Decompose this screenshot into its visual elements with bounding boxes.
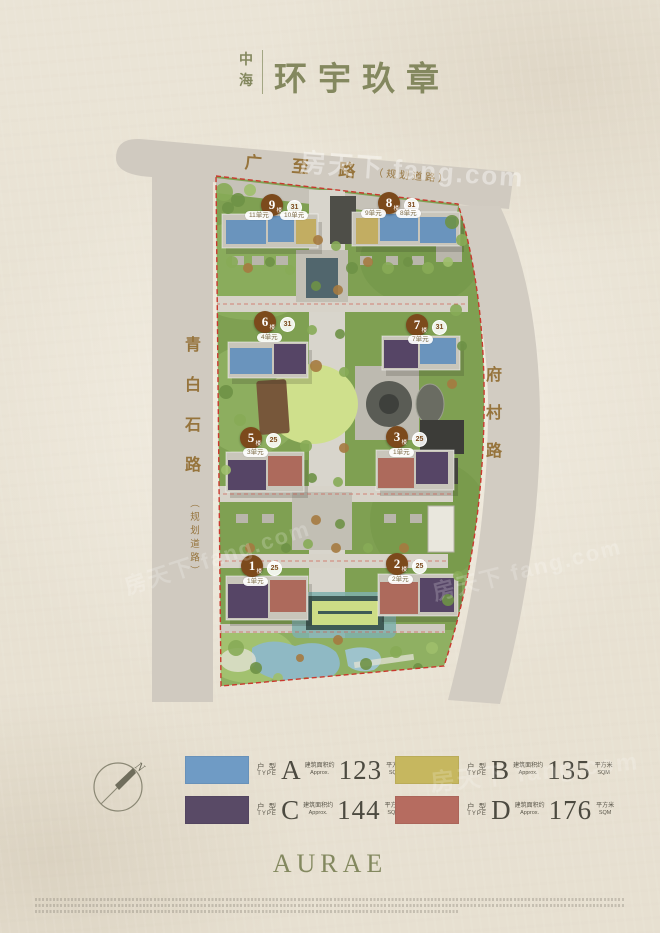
type-en: TYPE [257, 771, 277, 779]
legend-type-letter: D [491, 796, 511, 824]
legend-item-a: 户 型TYPEA建筑面积约Approx.123平方米SQM [185, 755, 404, 785]
approx-en: Approx. [513, 770, 543, 777]
building-number: 7 [414, 317, 421, 332]
legend-area-value: 176 [549, 796, 593, 824]
floor-count-badge: 25 [266, 433, 281, 448]
legend-unit-label: 平方米SQM [596, 803, 614, 817]
legend-area-value: 144 [337, 796, 381, 824]
type-en: TYPE [467, 811, 487, 819]
sqm-en: SQM [596, 810, 614, 817]
building-marker: 2楼 [386, 553, 408, 575]
road-note-left: （规划道路） [186, 498, 200, 579]
approx-cn: 建筑面积约 [305, 763, 335, 771]
legend-item-b: 户 型TYPEB建筑面积约Approx.135平方米SQM [395, 755, 613, 785]
building-number: 3 [394, 429, 401, 444]
unit-label: 10单元 [280, 211, 308, 220]
building-3-roof [376, 450, 454, 490]
building-number: 6 [262, 314, 269, 329]
approx-cn: 建筑面积约 [303, 803, 333, 811]
building-marker: 1楼 [241, 555, 263, 577]
type-cn: 户 型 [467, 802, 487, 811]
building-suffix: 楼 [421, 326, 427, 334]
type-cn: 户 型 [257, 762, 277, 771]
unit-label: 1单元 [243, 577, 268, 586]
legend-item-c: 户 型TYPEC建筑面积约Approx.144平方米SQM [185, 795, 403, 825]
legend-swatch [185, 796, 249, 824]
disclaimer-line [35, 904, 625, 907]
unit-label: 4单元 [257, 333, 282, 342]
building-suffix: 楼 [256, 567, 262, 575]
building-6-roof [228, 342, 308, 378]
floor-count-badge: 25 [267, 561, 282, 576]
legend-type-letter: B [491, 756, 509, 784]
brand-logo: AURAE [0, 849, 660, 879]
building-suffix: 楼 [255, 439, 261, 447]
legend-approx-label: 建筑面积约Approx. [515, 803, 545, 817]
legend-type-label: 户 型TYPE [467, 802, 487, 819]
unit-label: 11单元 [245, 211, 273, 220]
unit-label: 7单元 [408, 335, 433, 344]
unit-label: 2单元 [388, 575, 413, 584]
type-cn: 户 型 [257, 802, 277, 811]
sqm-cn: 平方米 [596, 803, 614, 811]
legend-type-label: 户 型TYPE [257, 802, 277, 819]
building-number: 8 [386, 195, 393, 210]
unit-label: 8单元 [396, 209, 421, 218]
building-suffix: 楼 [401, 438, 407, 446]
floor-count-badge: 25 [412, 432, 427, 447]
disclaimer-line [35, 910, 460, 913]
floor-count-badge: 25 [412, 559, 427, 574]
legend-type-label: 户 型TYPE [467, 762, 487, 779]
building-5-roof [226, 452, 304, 492]
legend-approx-label: 建筑面积约Approx. [303, 803, 333, 817]
building-number: 2 [394, 556, 401, 571]
building-suffix: 楼 [269, 323, 275, 331]
type-en: TYPE [467, 771, 487, 779]
building-marker: 6楼 [254, 311, 276, 333]
approx-en: Approx. [515, 810, 545, 817]
legend-approx-label: 建筑面积约Approx. [305, 763, 335, 777]
legend-item-d: 户 型TYPED建筑面积约Approx.176平方米SQM [395, 795, 614, 825]
approx-cn: 建筑面积约 [513, 763, 543, 771]
floor-count-badge: 31 [432, 320, 447, 335]
building-number: 5 [248, 430, 255, 445]
type-en: TYPE [257, 811, 277, 819]
legend-unit-label: 平方米SQM [595, 763, 613, 777]
approx-en: Approx. [305, 770, 335, 777]
building-marker: 7楼 [406, 314, 428, 336]
floor-count-badge: 31 [280, 317, 295, 332]
legend-area-value: 135 [547, 756, 591, 784]
legend-type-letter: A [281, 756, 301, 784]
legend-approx-label: 建筑面积约Approx. [513, 763, 543, 777]
sqm-en: SQM [595, 770, 613, 777]
disclaimer-line [35, 898, 625, 901]
approx-en: Approx. [303, 810, 333, 817]
legend-type-letter: C [281, 796, 299, 824]
building-marker: 3楼 [386, 426, 408, 448]
legend-area-value: 123 [339, 756, 383, 784]
building-marker: 5楼 [240, 427, 262, 449]
unit-label: 3单元 [243, 448, 268, 457]
compass-icon: N [88, 750, 152, 814]
unit-label: 1单元 [389, 448, 414, 457]
unit-label: 9单元 [361, 209, 386, 218]
building-number: 9 [269, 197, 276, 212]
type-cn: 户 型 [467, 762, 487, 771]
approx-cn: 建筑面积约 [515, 803, 545, 811]
road-label-left: 青白石路 [178, 336, 202, 496]
sqm-cn: 平方米 [595, 763, 613, 771]
legend-swatch [395, 756, 459, 784]
legend-swatch [395, 796, 459, 824]
legend-swatch [185, 756, 249, 784]
building-number: 1 [249, 558, 256, 573]
poster-page: 中海 环宇玖章 [0, 0, 660, 933]
disclaimer-text [35, 898, 625, 916]
legend-type-label: 户 型TYPE [257, 762, 277, 779]
building-suffix: 楼 [401, 565, 407, 573]
road-label-right: 府村路 [479, 366, 503, 480]
